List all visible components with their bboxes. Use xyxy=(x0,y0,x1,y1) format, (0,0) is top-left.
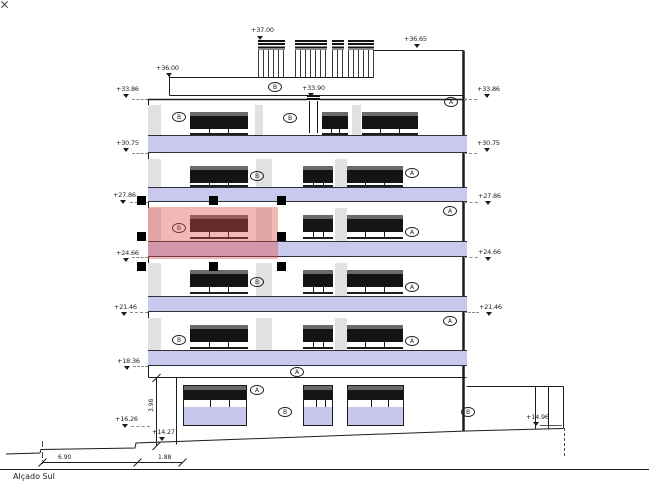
selection-handle[interactable] xyxy=(277,232,286,241)
selection-handle[interactable] xyxy=(137,232,146,241)
selection-handle[interactable] xyxy=(209,262,218,271)
selection-handle[interactable] xyxy=(137,196,146,205)
selection-center-mark xyxy=(0,0,9,9)
selection-handle[interactable] xyxy=(277,262,286,271)
drawing-canvas: BABBBAABABAABAAABB +37.00+36.65+36.00+33… xyxy=(0,0,649,489)
selection-handle[interactable] xyxy=(277,196,286,205)
selection-handles-layer xyxy=(0,0,649,489)
selection-handle[interactable] xyxy=(209,196,218,205)
selection-handle[interactable] xyxy=(137,262,146,271)
